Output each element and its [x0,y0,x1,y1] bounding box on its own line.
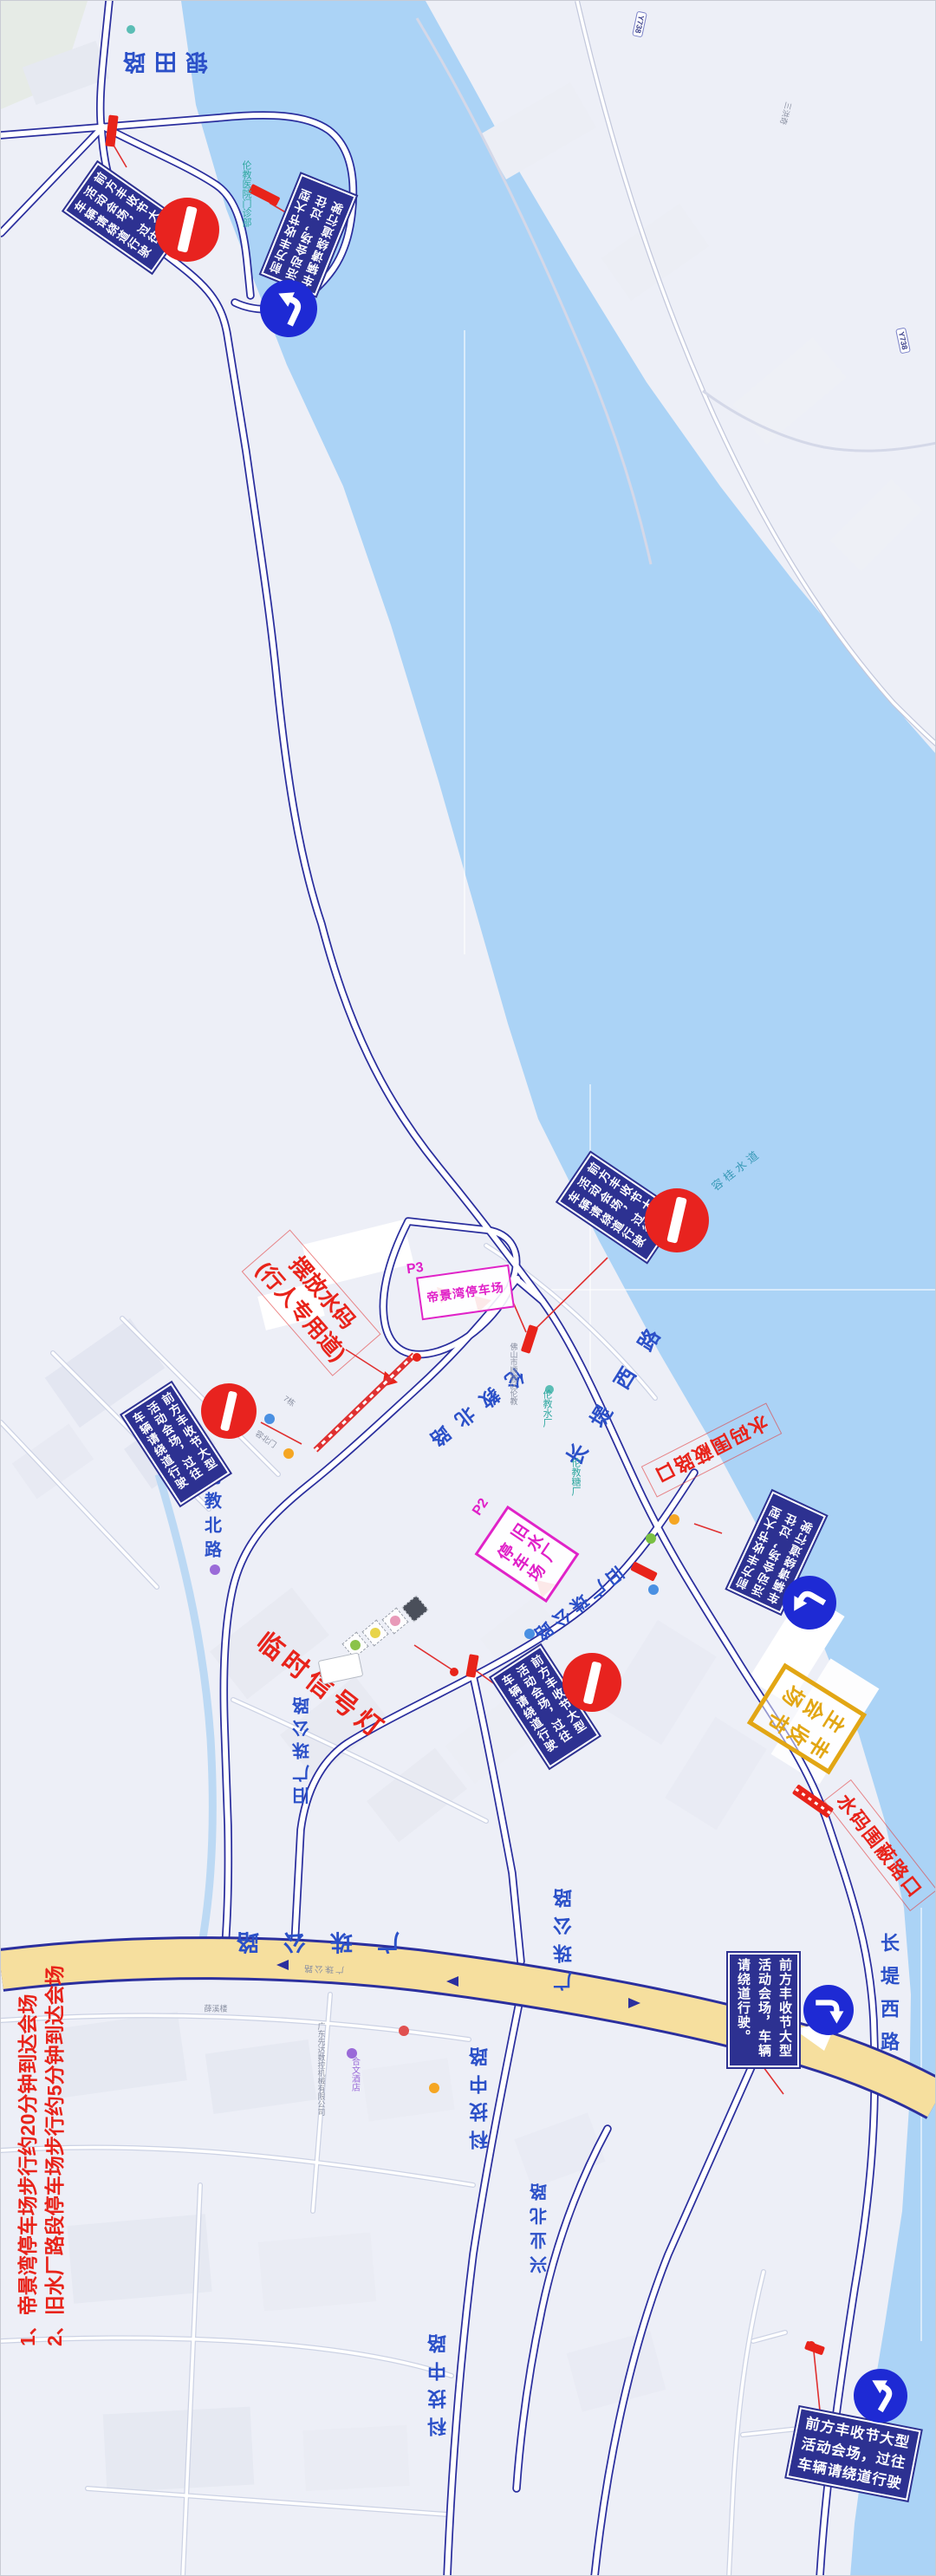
no-entry-bar [582,1661,601,1704]
no-entry-bar [220,1390,237,1431]
poi-xuexilou: 薛溪楼 [204,2003,227,2014]
road-label-yintian: 银田路 [114,48,208,80]
no-entry-sign-4 [562,1653,621,1712]
note-line-2: 2、旧水厂路段停车场步行约5分钟到达会场 [42,1955,68,2346]
parking-p3-name: 帝景湾停车场 [426,1278,505,1306]
turn-left-arrow-icon [854,2369,908,2423]
turn-left-arrow-icon [261,281,317,337]
road-label-guangzhu-small: 广珠公路 [302,1963,344,1978]
note-line-1: 1、帝景湾停车场步行约20分钟到达会场 [15,1955,42,2346]
road-label-changdi-2: 长堤西路 [874,1933,902,2065]
detour-board-7: 前方丰收节大型 活动会场，车辆 请绕道行驶。 [728,1953,799,2067]
poi-machinery: 广东先达数控机械有限公司 [316,2022,328,2078]
traffic-guidance-map: 银田路 长堤西路 长堤西路 伦教北路 伦教北路 旧广珠公路 旧广珠公路 广珠公路… [0,0,936,2576]
no-entry-bar [666,1197,687,1245]
poi-hotel: 合文酒店 [348,2057,361,2091]
no-entry-sign-3 [201,1383,257,1439]
no-entry-bar [177,206,198,254]
no-entry-sign-2 [645,1188,709,1252]
turn-right-arrow-icon [810,1992,848,2029]
turn-arrow-sign-3 [803,1985,854,2035]
road-label-keji-2: 科技中路 [425,2326,452,2436]
poi-shunde-gov: 佛山市顺德区伦教 [509,1343,520,1415]
turn-left-arrow-icon [783,1576,837,1630]
road-label-guangzhu-1: 广珠公路 [212,1928,400,1960]
poi-hospital: 伦教医院门诊部 [239,160,253,219]
no-entry-sign-1 [155,198,219,262]
poi-waterworks: 伦教水厂 [540,1389,554,1428]
road-label-xingye: 兴业北路 [528,2176,553,2274]
road-label-guangzhu-2: 广珠公路 [550,1880,578,1991]
walking-distance-note: 1、帝景湾停车场步行约20分钟到达会场 2、旧水厂路段停车场步行约5分钟到达会场 [15,1955,68,2346]
road-label-jiuguangzhu-2: 旧广珠公路 [290,1692,315,1805]
road-label-keji-1: 科技中路 [466,2039,494,2150]
poi-sugar-mill: 伦教糖厂 [569,1458,582,1496]
board-col: 前方丰收节大型 [774,1958,795,2062]
board-col: 活动会场，车辆 [753,1958,774,2062]
parking-p3-tag: P3 [406,1260,425,1278]
board-col: 请绕道行驶。 [732,1958,753,2062]
